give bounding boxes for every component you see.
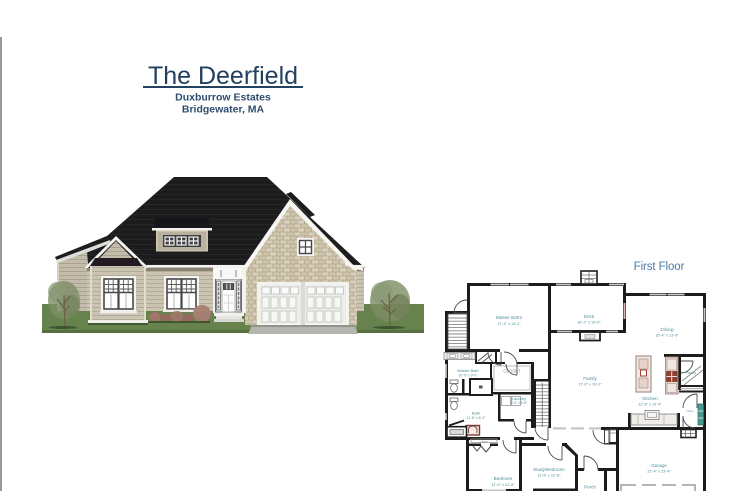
svg-text:CLOSET: CLOSET [503,369,521,374]
svg-text:17'-0" x 19'-0": 17'-0" x 19'-0" [578,383,602,387]
svg-text:17'-4" x 14'-2": 17'-4" x 14'-2" [497,322,521,326]
svg-text:Duxburrow Estates: Duxburrow Estates [175,92,271,104]
svg-text:Master Bdrm: Master Bdrm [496,315,522,320]
svg-text:Garage: Garage [651,463,667,468]
svg-text:Porch: Porch [584,485,596,490]
svg-text:Bedroom: Bedroom [494,476,513,481]
svg-text:closet: closet [480,440,488,444]
svg-text:16'-2" x 14'-0": 16'-2" x 14'-0" [577,321,601,325]
svg-text:11'-0" x 12'-8": 11'-0" x 12'-8" [491,483,515,487]
svg-text:Bridgewater, MA: Bridgewater, MA [182,104,265,116]
svg-text:11'-8" x 12'-8": 11'-8" x 12'-8" [537,474,561,478]
svg-text:Deck: Deck [584,314,595,319]
svg-text:Master Bath: Master Bath [457,368,479,373]
svg-text:Bath: Bath [472,411,480,416]
svg-text:Pantry: Pantry [686,371,696,375]
svg-text:10'-0" x 9'-0": 10'-0" x 9'-0" [459,374,479,378]
svg-text:16'-4" x 13'-8": 16'-4" x 13'-8" [655,334,679,338]
svg-text:Study/Bedroom: Study/Bedroom [533,467,565,472]
svg-text:First Floor: First Floor [634,261,685,273]
svg-text:6'-0" x 6'-8": 6'-0" x 6'-8" [511,401,527,405]
svg-text:21'-4" x 23'-4": 21'-4" x 23'-4" [647,470,671,474]
svg-text:11'-6" x 6'-4": 11'-6" x 6'-4" [467,416,487,420]
svg-text:The Deerfield: The Deerfield [148,62,298,90]
svg-text:closet: closet [686,409,694,413]
svg-text:Family: Family [583,376,597,381]
svg-text:Dining: Dining [660,327,673,332]
svg-text:12'-8" x 19'-4": 12'-8" x 19'-4" [638,403,662,407]
svg-text:Kitchen: Kitchen [642,396,658,401]
